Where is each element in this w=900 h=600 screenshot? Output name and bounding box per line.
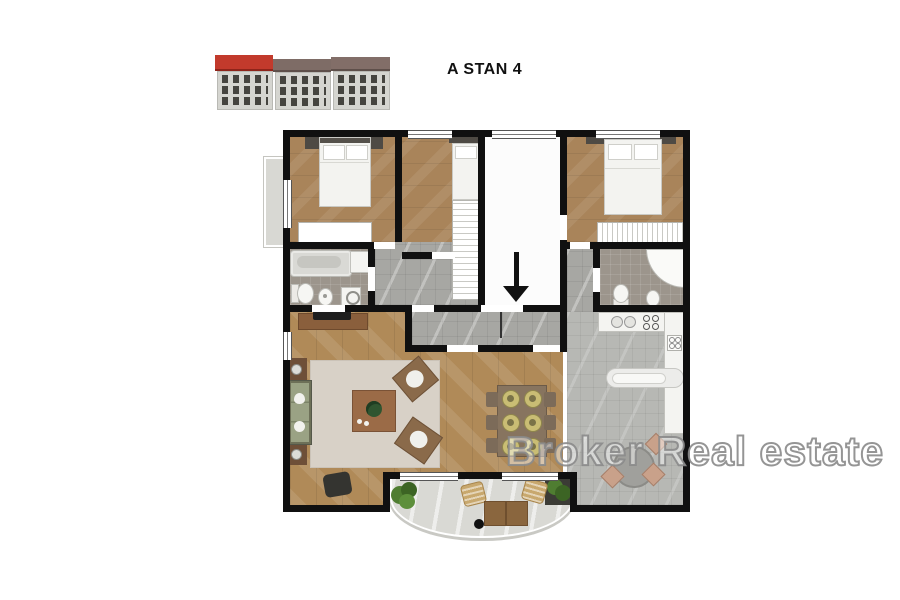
drain [323, 294, 327, 298]
door-opening [447, 345, 478, 352]
nightstand [305, 137, 319, 149]
kitchen-counter [598, 312, 668, 332]
watermark: Broker Real estate [506, 428, 884, 475]
burner [652, 323, 659, 330]
single-bed [452, 143, 480, 200]
sofa-pillow [294, 421, 305, 432]
entrance-arrow-icon [503, 252, 529, 304]
burner [652, 315, 659, 322]
window-row [222, 75, 268, 83]
window-row [280, 98, 326, 106]
wall-segment [593, 249, 600, 268]
place-setting [524, 390, 542, 408]
burner [643, 323, 650, 330]
building-unit [273, 59, 331, 110]
wall-segment [570, 472, 577, 512]
building-unit-highlighted [215, 55, 273, 110]
pillow [608, 144, 632, 160]
pillow [455, 146, 477, 159]
window [408, 130, 452, 139]
toilet [297, 283, 314, 304]
kitchen-island [606, 368, 684, 388]
cup [364, 421, 369, 426]
wall-segment [458, 472, 502, 479]
floor-pouf [322, 471, 353, 498]
wall-segment [434, 305, 481, 312]
window [283, 332, 292, 360]
window [596, 130, 660, 139]
wardrobe [452, 200, 480, 300]
corridor-floor [567, 249, 593, 312]
red-roof [215, 55, 273, 71]
duvet-line [320, 162, 369, 163]
window-row [338, 97, 385, 105]
vanity-cabinet [350, 251, 369, 273]
window-row [280, 76, 326, 84]
sink [624, 316, 636, 328]
nightstand [369, 137, 383, 149]
plant-in-pot [545, 477, 573, 505]
door-opening [432, 252, 455, 259]
place-setting [502, 390, 520, 408]
wall-segment [390, 472, 400, 479]
wardrobe [298, 222, 372, 244]
sofa-pillow [294, 393, 305, 404]
door-opening [312, 305, 345, 312]
building-unit [331, 57, 390, 110]
facade [275, 72, 331, 110]
burner [643, 315, 650, 322]
wall-segment [395, 130, 402, 242]
window-row [338, 75, 385, 83]
wall-segment [560, 240, 567, 352]
wall-segment [593, 305, 683, 312]
tub-basin [297, 256, 341, 268]
door-opening [368, 267, 375, 291]
dining-chair [544, 392, 556, 407]
toilet [613, 284, 629, 303]
door-opening [481, 305, 523, 312]
page-title: A STAN 4 [447, 61, 522, 79]
floor-plan-page: A STAN 4 [0, 0, 900, 600]
lamp [291, 449, 302, 460]
wall-segment [345, 305, 412, 312]
window-row [222, 97, 268, 105]
roof [273, 59, 331, 72]
tv [313, 311, 351, 320]
wall-segment [478, 130, 485, 312]
coffee-table [352, 390, 396, 432]
window-row [222, 86, 268, 94]
wall-segment [402, 252, 432, 259]
door-opening [560, 215, 567, 240]
washer-door [346, 291, 360, 305]
lamp [291, 364, 302, 375]
dining-chair [486, 392, 498, 407]
wall-segment [560, 130, 567, 215]
door-opening [374, 242, 395, 249]
entry-door [492, 130, 556, 139]
window-row [280, 87, 326, 95]
wardrobe [597, 222, 685, 244]
terrace-door [400, 472, 458, 481]
door-opening [593, 268, 600, 292]
dining-chair [486, 438, 498, 453]
double-bed [319, 137, 371, 207]
french-door [283, 180, 292, 228]
door-opening [533, 345, 560, 352]
cup [357, 419, 362, 424]
sink [611, 316, 623, 328]
bathtub [291, 251, 351, 276]
dining-chair [486, 415, 498, 430]
door-opening [570, 242, 590, 249]
washing-machine [341, 287, 361, 306]
wall-segment [383, 472, 390, 512]
cooktop [667, 335, 682, 351]
wall-segment [283, 242, 374, 249]
headboard [320, 138, 370, 143]
wall-segment [283, 305, 312, 312]
duvet-line [605, 168, 660, 169]
wall-segment [405, 345, 447, 352]
plant [391, 482, 421, 510]
facade [333, 71, 390, 110]
plant [366, 401, 382, 417]
building-elevation-thumbnail [215, 55, 390, 110]
terrace-table [484, 501, 528, 526]
window-row [338, 86, 385, 94]
pillow [634, 144, 658, 160]
roof [331, 57, 390, 71]
terrace-dot [474, 519, 484, 529]
facade [217, 71, 273, 110]
wall-segment [368, 249, 375, 267]
wall-segment [570, 505, 690, 512]
wall-segment [283, 505, 390, 512]
door-leaf [500, 312, 502, 338]
wall-segment [478, 345, 533, 352]
double-bed [604, 139, 662, 215]
pillow [323, 145, 345, 160]
pillow [346, 145, 368, 160]
bidet [318, 288, 333, 306]
